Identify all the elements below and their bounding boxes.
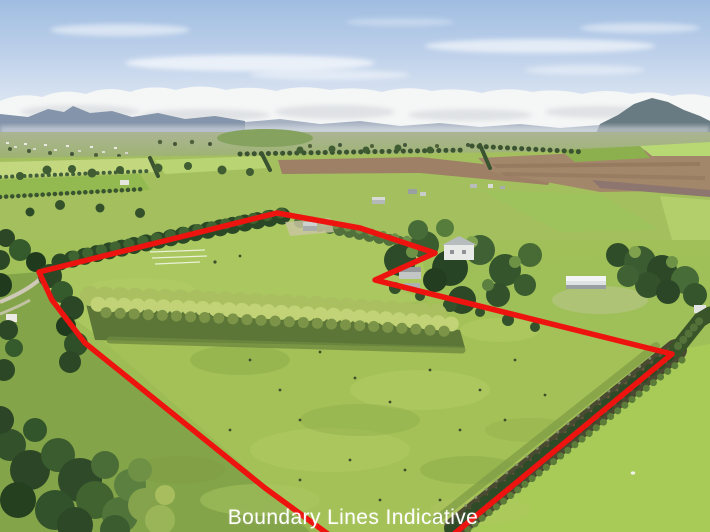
farm-house: [408, 189, 417, 194]
dirt-yard: [552, 286, 648, 314]
aerial-photo: Boundary Lines Indicative Boundary Lines…: [0, 0, 710, 532]
white-house: [444, 244, 474, 260]
white-barn: [120, 180, 129, 185]
caption-text-main: Boundary Lines Indicative: [228, 506, 479, 529]
poplar-row: [85, 296, 465, 350]
foreground-paddocks: [0, 213, 710, 532]
sheep-speck: [631, 471, 635, 474]
photo-canvas: Boundary Lines Indicative Boundary Lines…: [0, 0, 710, 532]
distant-green-hill: [217, 129, 313, 147]
